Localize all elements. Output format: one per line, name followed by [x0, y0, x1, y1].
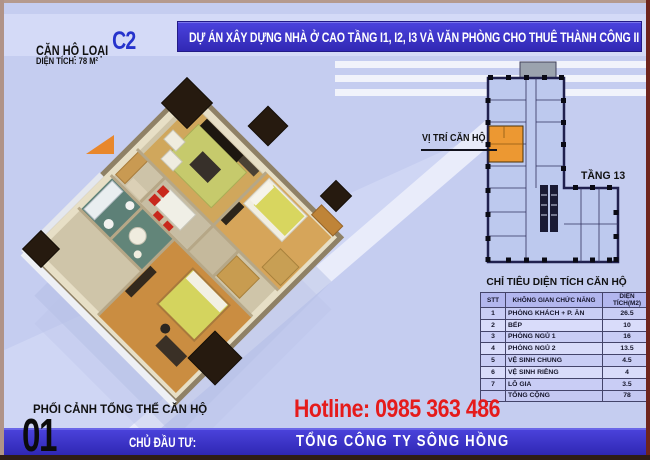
unit-location-pointer-line — [421, 149, 497, 151]
frame-edge-top — [0, 0, 650, 3]
frame-edge-bottom — [0, 455, 650, 460]
table-row: 5 VỆ SINH CHUNG 4.5 — [481, 355, 650, 367]
floor-label: TẦNG 13 — [581, 170, 625, 182]
table-row: 4 PHÒNG NGỦ 2 13.5 — [481, 343, 650, 355]
render-caption: PHỐI CẢNH TỔNG THỂ CĂN HỘ — [33, 402, 207, 416]
table-row: 1 PHÒNG KHÁCH + P. ĂN 26.5 — [481, 308, 650, 320]
hotline-text: Hotline: 0985 363 486 — [294, 395, 500, 424]
project-banner-text: DỰ ÁN XÂY DỰNG NHÀ Ở CAO TẦNG I1, I2, I3… — [189, 29, 639, 45]
area-table-header-row: STT KHÔNG GIAN CHỨC NĂNG DIỆN TÍCH(M2) — [481, 293, 650, 308]
frame-edge-right — [646, 0, 650, 460]
table-total-row: TỔNG CỘNG 78 — [481, 390, 650, 402]
table-row: 6 VỆ SINH RIÊNG 4 — [481, 366, 650, 378]
table-row: 3 PHÒNG NGỦ 1 16 — [481, 331, 650, 343]
sheet-number: 01 — [22, 408, 56, 460]
table-row: 7 LÔ GIA 3.5 — [481, 378, 650, 390]
highlighted-unit — [489, 126, 523, 162]
developer-name: TỔNG CÔNG TY SÔNG HỒNG — [296, 433, 509, 451]
unit-type-code: C2 — [112, 27, 135, 55]
area-table-title: CHỈ TIÊU DIỆN TÍCH CĂN HỘ — [478, 276, 635, 288]
unit-area-label: DIỆN TÍCH: 78 M² — [36, 56, 98, 67]
area-table: STT KHÔNG GIAN CHỨC NĂNG DIỆN TÍCH(M2) 1… — [480, 292, 650, 402]
developer-label: CHỦ ĐẦU TƯ: — [129, 434, 196, 450]
unit-location-label: VỊ TRÍ CĂN HỘ — [422, 133, 486, 144]
apartment-flyer-poster: CĂN HỘ LOẠIC2 DIỆN TÍCH: 78 M² DỰ ÁN XÂY… — [0, 0, 650, 460]
table-row: 2 BẾP 10 — [481, 319, 650, 331]
frame-edge-left — [0, 0, 4, 460]
project-banner: DỰ ÁN XÂY DỰNG NHÀ Ở CAO TẦNG I1, I2, I3… — [177, 21, 642, 52]
